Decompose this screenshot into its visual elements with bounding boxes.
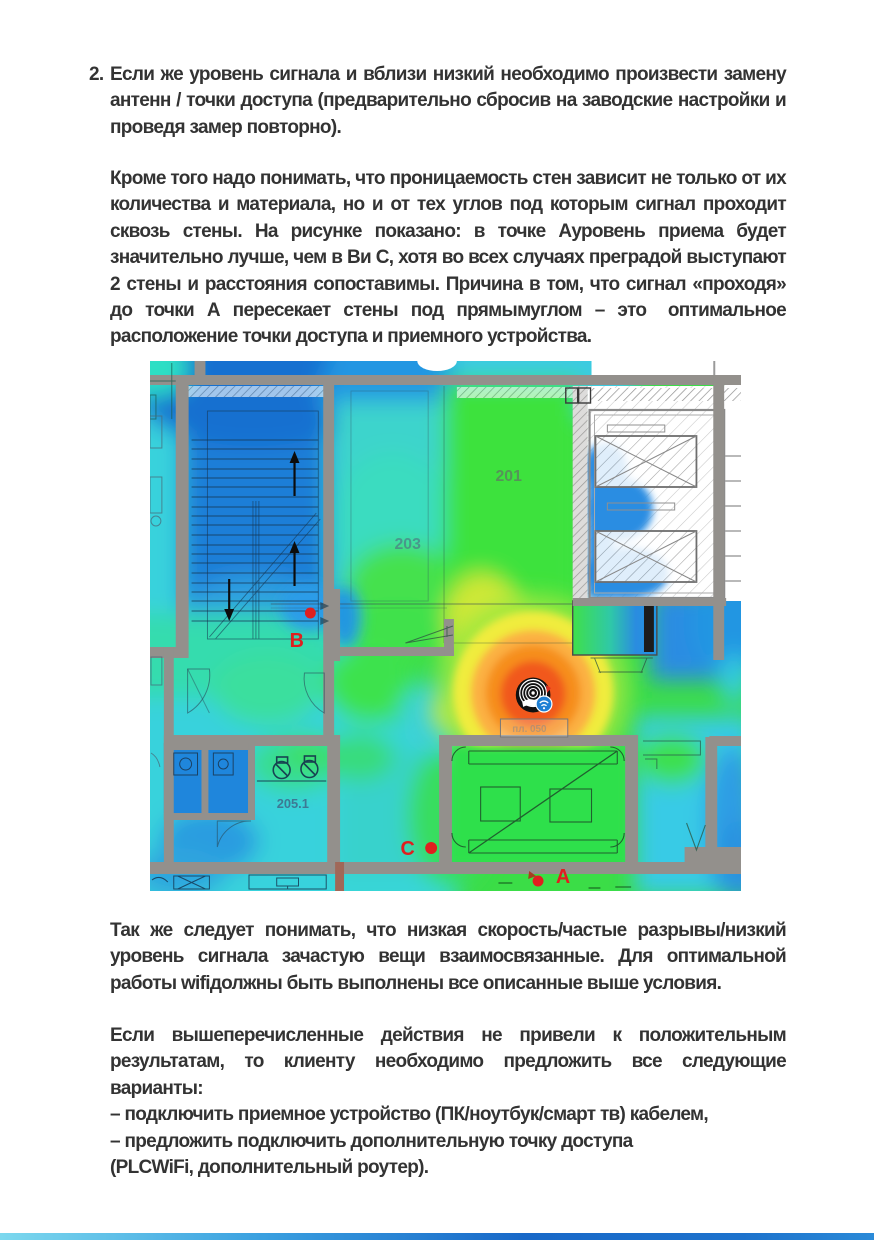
- svg-text:пл. 050: пл. 050: [512, 724, 547, 735]
- svg-text:201: 201: [495, 468, 522, 485]
- svg-text:203: 203: [395, 536, 422, 553]
- svg-text:C: C: [400, 838, 414, 860]
- svg-text:A: A: [556, 866, 570, 888]
- svg-text:205.1: 205.1: [277, 796, 309, 811]
- svg-text:B: B: [290, 630, 304, 652]
